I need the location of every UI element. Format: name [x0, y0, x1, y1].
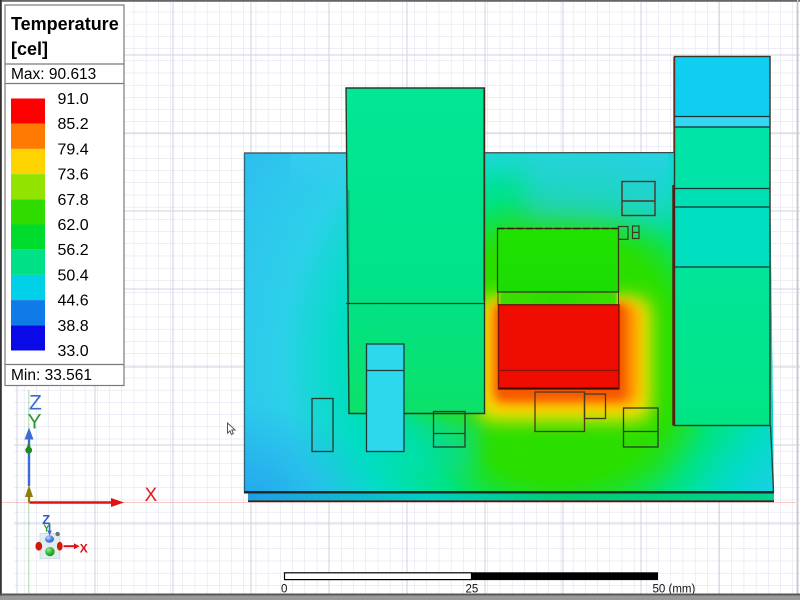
svg-text:Min: 33.561: Min: 33.561: [11, 367, 92, 384]
svg-text:33.0: 33.0: [58, 343, 89, 360]
svg-text:X: X: [145, 485, 158, 506]
svg-text:85.2: 85.2: [58, 116, 89, 133]
svg-text:91.0: 91.0: [58, 91, 89, 108]
svg-text:62.0: 62.0: [58, 217, 89, 234]
svg-text:50.4: 50.4: [58, 267, 89, 284]
svg-text:38.8: 38.8: [58, 318, 89, 335]
svg-text:79.4: 79.4: [58, 141, 89, 158]
svg-text:Y: Y: [28, 411, 42, 434]
svg-text:44.6: 44.6: [58, 293, 89, 310]
svg-text:X: X: [80, 542, 88, 556]
svg-text:Temperature: Temperature: [11, 14, 119, 34]
svg-text:73.6: 73.6: [58, 167, 89, 184]
svg-text:56.2: 56.2: [58, 242, 89, 259]
svg-text:[cel]: [cel]: [11, 39, 48, 59]
svg-text:Max: 90.613: Max: 90.613: [11, 66, 96, 83]
svg-text:67.8: 67.8: [58, 192, 89, 209]
